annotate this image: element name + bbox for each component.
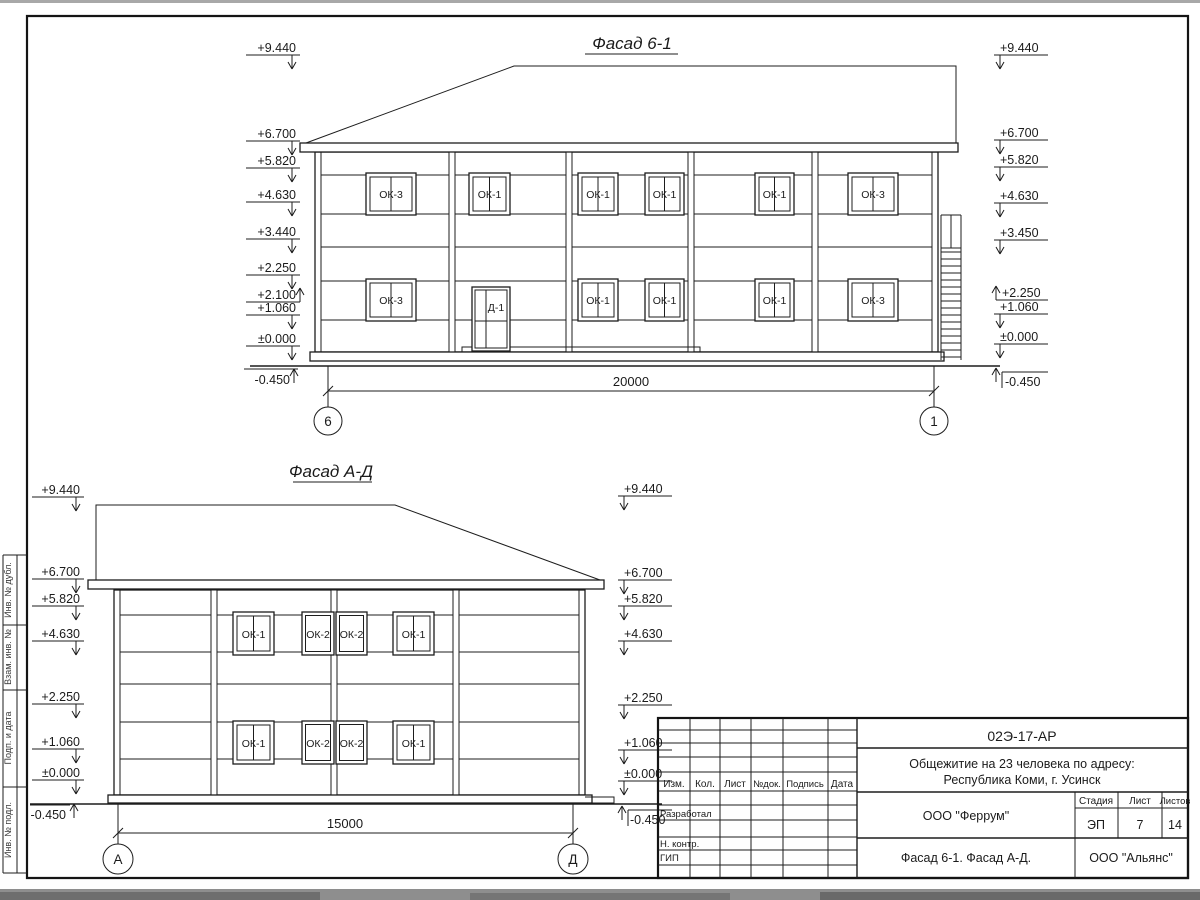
- elevation-mark: +4.630: [41, 627, 80, 641]
- dimension-text: 20000: [613, 374, 649, 389]
- window-label: ОК-3: [861, 295, 885, 307]
- drawing-sheet: Инв. № дубл. Взам. инв. № Подп. и дата И…: [0, 0, 1200, 900]
- axis-bubble-6: 6: [314, 407, 342, 435]
- elevation-mark: +4.630: [1000, 189, 1039, 203]
- organization-name: ООО "Феррум": [923, 809, 1009, 823]
- axis-bubble-1: 1: [920, 407, 948, 435]
- frame-stamp-label: Инв. № дубл.: [3, 562, 13, 618]
- elevation-mark: +2.250: [1002, 286, 1041, 300]
- window-ok-3: ОК-3: [848, 173, 898, 215]
- facade-a-d-view: Фасад А-Д ОК-1 ОК-2 ОК: [30, 462, 672, 874]
- door-label: Д-1: [488, 302, 505, 314]
- window-ok-2: ОК-2: [336, 721, 367, 764]
- tb-col-podpis: Подпись: [786, 779, 824, 790]
- elevation-mark: +1.060: [257, 301, 296, 315]
- elevation-marks-left: +9.440 +6.700 +5.820 +4.630 +3.440 +2.25…: [244, 41, 304, 387]
- elevation-mark: ±0.000: [42, 766, 80, 780]
- elevation-mark: ±0.000: [1000, 330, 1038, 344]
- elevation-mark: -0.450: [1005, 375, 1040, 389]
- window-ok-1: ОК-1: [645, 173, 684, 215]
- elevation-mark: -0.450: [255, 373, 290, 387]
- axis-label: А: [113, 852, 122, 867]
- window-label: ОК-2: [306, 629, 330, 641]
- window-ok-3: ОК-3: [366, 173, 416, 215]
- window-label: ОК-1: [586, 189, 610, 201]
- window-label: ОК-1: [763, 295, 787, 307]
- elevation-mark: +6.700: [624, 566, 663, 580]
- door-d-1: Д-1: [472, 287, 510, 351]
- window-ok-1: ОК-1: [755, 173, 794, 215]
- window-label: ОК-1: [586, 295, 610, 307]
- window-label: ОК-2: [340, 738, 364, 750]
- axis-bubble-d: Д: [558, 844, 588, 874]
- facade-a-d-title: Фасад А-Д: [289, 462, 373, 481]
- sheets-label: Листов: [1160, 796, 1191, 807]
- project-name-line1: Общежитие на 23 человека по адресу:: [909, 757, 1134, 771]
- elevation-mark: +2.100: [257, 288, 296, 302]
- elevation-mark: +5.820: [257, 154, 296, 168]
- elevation-mark: +6.700: [1000, 126, 1039, 140]
- window-ok-1: ОК-1: [233, 721, 274, 764]
- sheets-total: 14: [1168, 818, 1182, 832]
- facade-a-d-roof: [88, 505, 604, 589]
- tb-col-data: Дата: [831, 779, 854, 790]
- elevation-mark: -0.450: [31, 808, 66, 822]
- elevation-mark: +1.060: [1000, 300, 1039, 314]
- dimension-text: 15000: [327, 816, 363, 831]
- elevation-mark: +1.060: [624, 736, 663, 750]
- stage-label: Стадия: [1079, 796, 1113, 807]
- elevation-mark: +4.630: [257, 188, 296, 202]
- facade-6-1-roof: [300, 66, 958, 152]
- tb-col-kol: Кол.: [695, 779, 715, 790]
- frame-stamp-label: Взам. инв. №: [3, 629, 13, 685]
- sheet-title: Фасад 6-1. Фасад А-Д.: [901, 851, 1031, 865]
- sheet-number: 7: [1137, 818, 1144, 832]
- fire-escape-ladder: [941, 215, 961, 360]
- elevation-mark: +9.440: [624, 482, 663, 496]
- elevation-mark: +5.820: [1000, 153, 1039, 167]
- facade-a-d-plinth: [30, 795, 662, 804]
- elevation-mark: +9.440: [257, 41, 296, 55]
- window-ok-1: ОК-1: [393, 721, 434, 764]
- tb-col-izm: Изм.: [663, 779, 684, 790]
- axis-bubble-a: А: [103, 844, 133, 874]
- window-ok-1: ОК-1: [233, 612, 274, 655]
- window-ok-1: ОК-1: [755, 279, 794, 321]
- window-ok-2: ОК-2: [336, 612, 367, 655]
- window-ok-1: ОК-1: [469, 173, 510, 215]
- tb-row-gip: ГИП: [660, 853, 679, 864]
- window-label: ОК-1: [242, 629, 266, 641]
- window-label: ОК-1: [653, 189, 677, 201]
- frame-stamp-label: Инв. № подл.: [3, 802, 13, 858]
- window-label: ОК-1: [763, 189, 787, 201]
- elevation-mark: +6.700: [41, 565, 80, 579]
- contractor-name: ООО "Альянс": [1089, 851, 1173, 865]
- elevation-mark: +6.700: [257, 127, 296, 141]
- project-name-line2: Республика Коми, г. Усинск: [944, 773, 1101, 787]
- tb-row-nkontr: Н. контр.: [660, 839, 699, 850]
- elevation-mark: +1.060: [41, 735, 80, 749]
- facade-6-1-view: Фасад 6-1 ОК-3 ОК: [244, 34, 1048, 435]
- facade-drawing: Инв. № дубл. Взам. инв. № Подп. и дата И…: [0, 0, 1200, 900]
- elevation-mark: +3.450: [1000, 226, 1039, 240]
- window-ok-3: ОК-3: [366, 279, 416, 321]
- elevation-mark: +2.250: [257, 261, 296, 275]
- dimension-15000: 15000: [113, 804, 578, 844]
- window-ok-1: ОК-1: [393, 612, 434, 655]
- window-label: ОК-3: [379, 295, 403, 307]
- elevation-marks-right: +9.440 +6.700 +5.820 +4.630 +3.450 +2.25…: [992, 41, 1048, 389]
- window-label: ОК-2: [340, 629, 364, 641]
- window-ok-1: ОК-1: [578, 279, 618, 321]
- tb-col-list: Лист: [724, 779, 746, 790]
- title-block: Изм. Кол. Лист №док. Подпись Дата Разраб…: [658, 718, 1190, 878]
- elevation-mark: +4.630: [624, 627, 663, 641]
- window-label: ОК-1: [653, 295, 677, 307]
- elevation-mark: +9.440: [41, 483, 80, 497]
- document-code: 02Э-17-АР: [987, 728, 1056, 744]
- window-ok-2: ОК-2: [302, 721, 334, 764]
- tb-row-razrabotal: Разработал: [660, 809, 712, 820]
- elevation-mark: +5.820: [624, 592, 663, 606]
- tb-col-ndok: №док.: [753, 779, 781, 790]
- axis-label: 6: [324, 414, 332, 429]
- window-label: ОК-2: [306, 738, 330, 750]
- elevation-mark: +2.250: [624, 691, 663, 705]
- sheet-label: Лист: [1129, 796, 1151, 807]
- facade-6-1-title: Фасад 6-1: [592, 34, 672, 53]
- frame-stamp-label: Подп. и дата: [3, 711, 13, 764]
- window-label: ОК-3: [379, 189, 403, 201]
- elevation-mark: +3.440: [257, 225, 296, 239]
- window-label: ОК-1: [402, 629, 426, 641]
- elevation-marks-left: +9.440 +6.700 +5.820 +4.630 +2.250 +1.06…: [30, 483, 84, 822]
- window-ok-1: ОК-1: [645, 279, 684, 321]
- elevation-marks-right: +9.440 +6.700 +5.820 +4.630 +2.250 +1.06…: [618, 482, 672, 827]
- elevation-mark: +5.820: [41, 592, 80, 606]
- window-label: ОК-1: [402, 738, 426, 750]
- window-ok-1: ОК-1: [578, 173, 618, 215]
- window-label: ОК-3: [861, 189, 885, 201]
- stage-value: ЭП: [1087, 818, 1105, 832]
- window-ok-2: ОК-2: [302, 612, 334, 655]
- window-ok-3: ОК-3: [848, 279, 898, 321]
- elevation-mark: ±0.000: [624, 767, 662, 781]
- dimension-20000: 20000: [323, 366, 939, 407]
- window-label: ОК-1: [242, 738, 266, 750]
- elevation-mark: ±0.000: [258, 332, 296, 346]
- axis-label: 1: [930, 414, 938, 429]
- axis-label: Д: [568, 852, 577, 867]
- elevation-mark: +2.250: [41, 690, 80, 704]
- elevation-mark: +9.440: [1000, 41, 1039, 55]
- window-label: ОК-1: [478, 189, 502, 201]
